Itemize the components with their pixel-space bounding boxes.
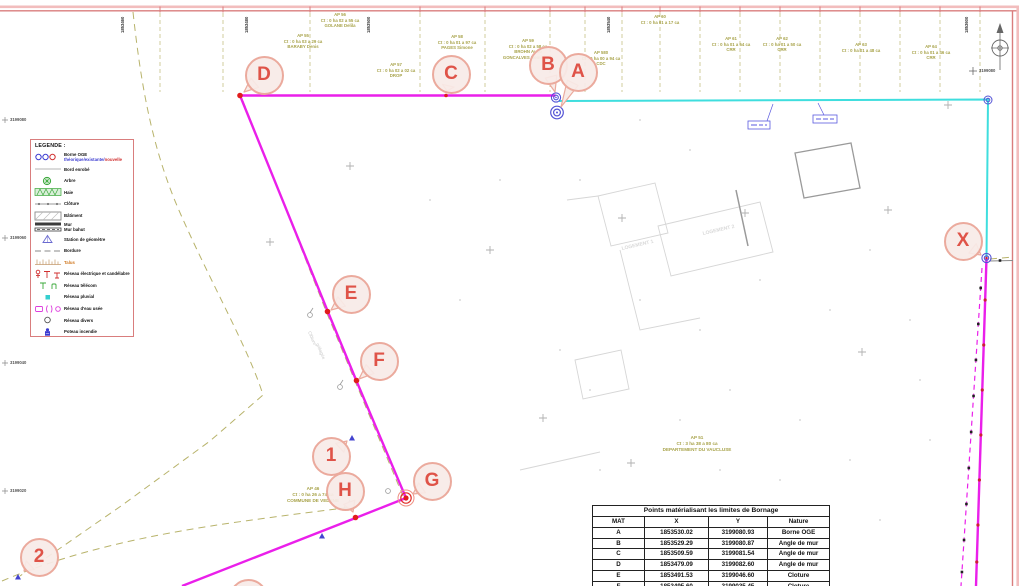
legend-item-bordure: Bordure bbox=[34, 246, 131, 256]
point-E-marker bbox=[325, 309, 331, 315]
point-A-marker bbox=[551, 106, 564, 119]
fence-post-square bbox=[961, 571, 964, 574]
fence-post-square bbox=[967, 467, 970, 470]
grid-cross bbox=[346, 162, 354, 170]
label-line: CRR bbox=[712, 47, 750, 53]
grid-cross bbox=[884, 206, 892, 214]
legend-item-station: Station de géomètre bbox=[34, 234, 131, 244]
speck bbox=[499, 179, 501, 181]
table-cell: A bbox=[593, 527, 645, 538]
coord-label-top: 1853480 bbox=[245, 17, 249, 33]
speck bbox=[429, 199, 431, 201]
legend-item-label: Talus bbox=[64, 260, 75, 265]
legend-item-label: Borne OGEthéorique/existante/nouvelle bbox=[64, 152, 122, 162]
legend-label-text: Bord enrobé bbox=[64, 167, 90, 172]
table-cell: D bbox=[593, 560, 645, 571]
coord-cross-left bbox=[2, 488, 8, 494]
fence-post-square bbox=[970, 431, 973, 434]
speck bbox=[679, 419, 681, 421]
fence-note-2: grillagée bbox=[315, 342, 326, 360]
label-line: Ct : 0 ha 01 a 48 ca bbox=[842, 48, 880, 54]
table-cell: Borne OGE bbox=[768, 527, 830, 538]
label-line: PAGES Simone bbox=[438, 45, 476, 51]
coord-label-left: 3199080 bbox=[10, 118, 26, 122]
label-line: CRR bbox=[912, 55, 950, 61]
arbre-icon bbox=[34, 176, 64, 186]
building-label-2: LOGEMENT 2 bbox=[702, 224, 735, 237]
survey-specks bbox=[429, 119, 931, 521]
bornage-points-table: Points matérialisant les limites de Born… bbox=[592, 505, 830, 586]
legend-item-label: Réseau divers bbox=[64, 318, 93, 323]
table-cell: F bbox=[593, 581, 645, 586]
legend-sub-text: théorique/existante/ bbox=[64, 157, 105, 162]
coord-cross-topright bbox=[969, 67, 977, 75]
parcel-label: AP 64Ct : 0 ha 01 a 46 caCRR bbox=[912, 44, 950, 61]
legend-title: LEGENDE : bbox=[35, 144, 131, 149]
coord-label-right: 3199080 bbox=[979, 69, 995, 73]
boundary-dot bbox=[976, 523, 979, 526]
speck bbox=[459, 299, 461, 301]
legend-item-label: Bord enrobé bbox=[64, 167, 90, 172]
sheet-border-top bbox=[0, 6, 1019, 9]
north-arrow-icon bbox=[991, 23, 1009, 70]
legend-label-text: Poteau incendie bbox=[64, 329, 97, 334]
point-bubble-2: 2 bbox=[20, 538, 59, 577]
table-cell: 3199046.60 bbox=[709, 570, 768, 581]
point-bubble-X: X bbox=[944, 222, 983, 261]
haie-icon bbox=[34, 187, 64, 197]
bordure-icon bbox=[34, 246, 64, 256]
fence-post-square bbox=[979, 287, 982, 290]
table-column-header: X bbox=[645, 517, 709, 528]
fence-line-dashed bbox=[961, 268, 982, 586]
speck bbox=[779, 479, 781, 481]
boundary-dot bbox=[978, 478, 981, 481]
station-triangle-3 bbox=[319, 533, 325, 539]
grid-cross bbox=[486, 246, 494, 254]
grid-cross bbox=[266, 238, 274, 246]
parcel-label: AP 62Ct : 0 ha 01 a 50 caCRR bbox=[763, 36, 801, 53]
point-bubble-A: A bbox=[559, 53, 598, 92]
speck bbox=[759, 279, 761, 281]
legend-item-label: Bordure bbox=[64, 248, 81, 253]
table-cell: 3199082.60 bbox=[709, 560, 768, 571]
building-label-1: LOGEMENT 1 bbox=[621, 239, 654, 252]
boundary-dot bbox=[979, 433, 982, 436]
table-cell: 1853495.60 bbox=[645, 581, 709, 586]
post-square bbox=[999, 259, 1002, 262]
grid-cross bbox=[539, 414, 547, 422]
network-line-cyan bbox=[559, 100, 988, 258]
legend-item-pluvial: Réseau pluvial bbox=[34, 292, 131, 302]
point-bubble-G: G bbox=[413, 462, 452, 501]
legend-item-divers: Réseau divers bbox=[34, 315, 131, 325]
legend-item-label: Station de géomètre bbox=[64, 237, 105, 242]
speck bbox=[869, 249, 871, 251]
fence-post-square bbox=[965, 503, 968, 506]
label-line: Ct : 0 ha 01 a 17 ca bbox=[641, 20, 679, 26]
legend-item-talus: Talus bbox=[34, 257, 131, 267]
table-cell: 1853530.02 bbox=[645, 527, 709, 538]
bord-icon bbox=[34, 164, 64, 174]
legend-label-text: Talus bbox=[64, 260, 75, 265]
coord-cross-left bbox=[2, 235, 8, 241]
table-row: E1853491.533199046.60Cloture bbox=[593, 570, 830, 581]
pluvial-icon bbox=[34, 292, 64, 302]
legend-item-bord: Bord enrobé bbox=[34, 164, 131, 174]
legend-label-text: Clôture bbox=[64, 201, 79, 206]
table-cell: 3199080.87 bbox=[709, 538, 768, 549]
parcel-label: AP 63Ct : 0 ha 01 a 48 ca bbox=[842, 42, 880, 53]
speck bbox=[829, 309, 831, 311]
parcel-label: AP 56Ct : 0 ha 02 a 55 caGOLANE Delila bbox=[321, 12, 359, 29]
legend-item-label: Arbre bbox=[64, 178, 75, 183]
boundary-dot bbox=[982, 343, 985, 346]
label-line: GOLANE Delila bbox=[321, 23, 359, 29]
table-row: B1853529.293199080.87Angle de mur bbox=[593, 538, 830, 549]
coord-label-top: 1853460 bbox=[121, 17, 125, 33]
table-cell: C bbox=[593, 549, 645, 560]
point-C-marker bbox=[444, 94, 448, 98]
label-line: BARABY Denis bbox=[284, 44, 322, 50]
coord-crosses-left bbox=[2, 117, 8, 494]
boundary-lines bbox=[182, 96, 987, 586]
cloture-icon bbox=[34, 199, 64, 209]
station-icon bbox=[34, 234, 64, 244]
divers-icon bbox=[34, 315, 64, 325]
legend-item-label: Poteau incendie bbox=[64, 329, 97, 334]
building-outlines bbox=[520, 183, 773, 470]
legend-label-text2: Mur bahut bbox=[64, 227, 85, 232]
table-cell: Angle de mur bbox=[768, 560, 830, 571]
point-B-marker bbox=[551, 93, 560, 102]
legend-label-text: Arbre bbox=[64, 178, 75, 183]
label-line: DEPARTEMENT DU VAUCLUSE bbox=[663, 447, 732, 453]
table-cell: E bbox=[593, 570, 645, 581]
elec-icon bbox=[34, 269, 64, 279]
speck bbox=[589, 389, 591, 391]
garage-building-outline bbox=[795, 143, 860, 198]
fence-post-square bbox=[963, 539, 966, 542]
legend-item-label: Réseau pluvial bbox=[64, 294, 94, 299]
table-column-header: Nature bbox=[768, 517, 830, 528]
point-bubble-1: 1 bbox=[312, 437, 351, 476]
table-cell: 3199035.45 bbox=[709, 581, 768, 586]
fence-post-square bbox=[972, 395, 975, 398]
point-bubble-C: C bbox=[432, 55, 471, 94]
legend-item-elec: Réseau électrique et candélabre bbox=[34, 269, 131, 279]
legend-sub-text: nouvelle bbox=[105, 157, 122, 162]
station-triangle-1 bbox=[349, 435, 355, 441]
parcel-label: AP 61Ct : 0 ha 01 a 54 caCRR bbox=[712, 36, 750, 53]
area-label: AP 51Ct : 3 ha 38 a 80 caDEPARTEMENT DU … bbox=[663, 435, 732, 453]
point-H-marker bbox=[353, 515, 359, 521]
speck bbox=[699, 329, 701, 331]
eau-icon bbox=[34, 304, 64, 314]
utility-labels-blue bbox=[748, 103, 837, 129]
coord-label-top: 1853600 bbox=[965, 17, 969, 33]
batiment-icon bbox=[34, 211, 64, 221]
legend-item-telecom: Réseau télécom bbox=[34, 280, 131, 290]
legend-label-text: Réseau électrique et candélabre bbox=[64, 271, 130, 276]
table-cell: Cloture bbox=[768, 570, 830, 581]
point-F-marker bbox=[354, 378, 360, 384]
mur-icon bbox=[34, 222, 64, 232]
table-cell: B bbox=[593, 538, 645, 549]
coord-label-left: 3199020 bbox=[10, 489, 26, 493]
legend-label-text: Bordure bbox=[64, 248, 81, 253]
table-cell: Cloture bbox=[768, 581, 830, 586]
legend-item-label: Haie bbox=[64, 190, 73, 195]
point-markers bbox=[15, 93, 992, 580]
legend-label-text: Réseau divers bbox=[64, 318, 93, 323]
speck bbox=[689, 149, 691, 151]
coord-cross-left bbox=[2, 360, 8, 366]
table-cell: Angle de mur bbox=[768, 549, 830, 560]
table-row: D1853479.093199082.60Angle de mur bbox=[593, 560, 830, 571]
bubble-tails bbox=[24, 75, 981, 571]
speck bbox=[579, 179, 581, 181]
speck bbox=[909, 319, 911, 321]
table-column-header: MAT bbox=[593, 517, 645, 528]
legend-label-text: Station de géomètre bbox=[64, 237, 105, 242]
coord-label-left: 3199040 bbox=[10, 361, 26, 365]
legend-item-borne: Borne OGEthéorique/existante/nouvelle bbox=[34, 152, 131, 162]
speck bbox=[849, 459, 851, 461]
speck bbox=[599, 469, 601, 471]
speck bbox=[919, 379, 921, 381]
legend-item-label: MurMur bahut bbox=[64, 222, 85, 232]
point-bubble-D: D bbox=[245, 56, 284, 95]
table-cell: 1853479.09 bbox=[645, 560, 709, 571]
parcel-label: AP 57Ct : 0 ha 02 a 02 caDROP bbox=[377, 62, 415, 79]
legend-item-label: Bâtiment bbox=[64, 213, 82, 218]
table-cell: 1853529.29 bbox=[645, 538, 709, 549]
boundary-dot bbox=[981, 388, 984, 391]
field-path-dashed bbox=[2, 12, 1013, 581]
telecom-icon bbox=[34, 280, 64, 290]
grid-cross bbox=[618, 214, 626, 222]
table-cell: 1853491.53 bbox=[645, 570, 709, 581]
grid-cross bbox=[944, 101, 952, 109]
speck bbox=[929, 439, 931, 441]
table-cell: 1853509.59 bbox=[645, 549, 709, 560]
fence-post-square bbox=[977, 323, 980, 326]
coord-label-left: 3199060 bbox=[10, 236, 26, 240]
legend-label-text: Réseau télécom bbox=[64, 283, 97, 288]
boundary-dot bbox=[975, 560, 978, 563]
legend-item-haie: Haie bbox=[34, 187, 131, 197]
fence-post-square bbox=[975, 359, 978, 362]
legend-label-text: Bâtiment bbox=[64, 213, 82, 218]
point-D-marker bbox=[237, 93, 243, 99]
speck bbox=[639, 119, 641, 121]
legend-item-label: Clôture bbox=[64, 201, 79, 206]
legend-box: LEGENDE : Borne OGEthéorique/existante/n… bbox=[30, 139, 134, 337]
table-row: C1853509.593199081.54Angle de mur bbox=[593, 549, 830, 560]
speck bbox=[799, 419, 801, 421]
speck bbox=[559, 349, 561, 351]
speck bbox=[879, 519, 881, 521]
table-row: F1853495.603199035.45Cloture bbox=[593, 581, 830, 586]
wall-segment bbox=[736, 190, 748, 246]
parcel-label: AP 58Ct : 0 ha 01 a 97 caPAGES Simone bbox=[438, 34, 476, 51]
legend-item-mur: MurMur bahut bbox=[34, 222, 131, 232]
legend-item-label: Réseau télécom bbox=[64, 283, 97, 288]
table-column-header: Y bbox=[709, 517, 768, 528]
point-bubble-F: F bbox=[360, 342, 399, 381]
legend-item-batiment: Bâtiment bbox=[34, 211, 131, 221]
coord-label-top: 1853500 bbox=[367, 17, 371, 33]
legend-sub-line: théorique/existante/nouvelle bbox=[64, 157, 122, 162]
legend-items: Borne OGEthéorique/existante/nouvelleBor… bbox=[34, 152, 131, 337]
label-line: DROP bbox=[377, 73, 415, 79]
point-bubble-H: H bbox=[326, 472, 365, 511]
plan-drawing: LOGEMENT 1 LOGEMENT 2 Clôture grillagée bbox=[0, 0, 1024, 586]
speck bbox=[639, 299, 641, 301]
speck bbox=[719, 469, 721, 471]
table-row: A1853530.023199080.93Borne OGE bbox=[593, 527, 830, 538]
legend-item-arbre: Arbre bbox=[34, 176, 131, 186]
grid-cross bbox=[627, 459, 635, 467]
point-G-marker bbox=[398, 490, 414, 506]
talus-icon bbox=[34, 257, 64, 267]
parcel-label: AP 60Ct : 0 ha 01 a 17 ca bbox=[641, 14, 679, 25]
parcel-label: AP 55Ct : 0 ha 03 a 29 caBARABY Denis bbox=[284, 33, 322, 50]
bornage-plan-canvas: LOGEMENT 1 LOGEMENT 2 Clôture grillagée bbox=[0, 0, 1024, 586]
poteau-icon bbox=[34, 327, 64, 337]
legend-item-poteau: Poteau incendie bbox=[34, 327, 131, 337]
legend-label-text: Réseau pluvial bbox=[64, 294, 94, 299]
table-cell: 3199081.54 bbox=[709, 549, 768, 560]
point-bubble-E: E bbox=[332, 275, 371, 314]
table-title: Points matérialisant les limites de Born… bbox=[593, 506, 830, 517]
legend-label-text: Haie bbox=[64, 190, 73, 195]
label-line: CRR bbox=[763, 47, 801, 53]
grid-cross bbox=[858, 348, 866, 356]
sheet-border-right bbox=[1016, 6, 1019, 586]
table-cell: Angle de mur bbox=[768, 538, 830, 549]
borne-icon bbox=[34, 152, 64, 162]
legend-label-text: Réseau d'eau usée bbox=[64, 306, 103, 311]
legend-item-cloture: Clôture bbox=[34, 199, 131, 209]
table-cell: 3199080.93 bbox=[709, 527, 768, 538]
legend-item-label: Réseau d'eau usée bbox=[64, 306, 103, 311]
coord-cross-left bbox=[2, 117, 8, 123]
legend-item-eau: Réseau d'eau usée bbox=[34, 304, 131, 314]
speck bbox=[729, 389, 731, 391]
bornage-table: Points matérialisant les limites de Born… bbox=[592, 505, 829, 586]
legend-item-label: Réseau électrique et candélabre bbox=[64, 271, 130, 276]
boundary-dot bbox=[984, 298, 987, 301]
coord-label-top: 1853540 bbox=[607, 17, 611, 33]
